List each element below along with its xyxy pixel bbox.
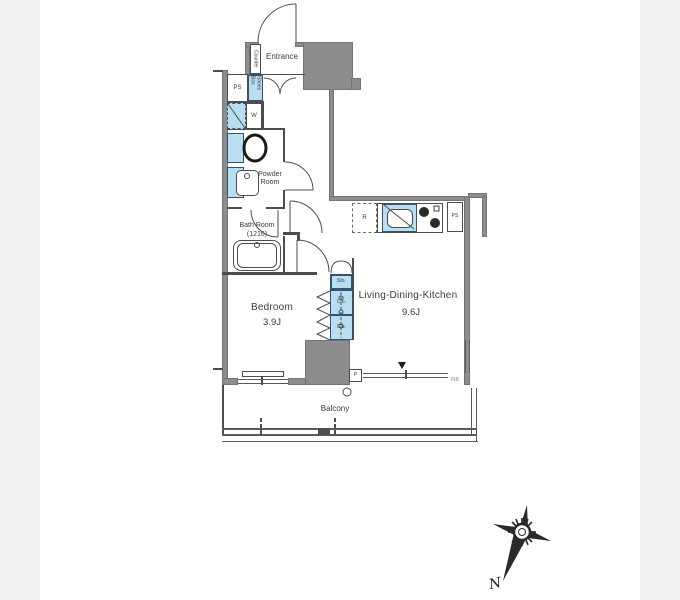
bathtub-faucet <box>255 243 260 248</box>
plan-linework <box>0 0 680 600</box>
closet-folding-doors <box>317 291 330 340</box>
balcony-drain <box>343 388 351 396</box>
vanity-faucet <box>245 174 250 179</box>
stove-burner-2 <box>430 218 440 228</box>
powder-door-arc <box>285 162 313 190</box>
window-marker-triangle <box>398 362 406 369</box>
compass-rose <box>493 505 551 581</box>
stove-control <box>434 206 439 211</box>
entrance-door-arc <box>258 4 296 42</box>
kitchen-sink-diagonal <box>384 205 414 229</box>
floorplan-image: PS Shoes Box Counter W R PS Sto. Clo. Cl… <box>0 0 680 600</box>
bedroom-door-arc <box>297 240 329 272</box>
bath-door-arc <box>251 210 278 237</box>
washer-pan-diagonal <box>228 104 245 128</box>
stove-burner-1 <box>419 207 429 217</box>
shoes-box-doors <box>264 78 296 94</box>
ldk-door-arc <box>290 201 322 233</box>
toilet-bowl <box>244 135 266 161</box>
storage-doors <box>331 261 352 273</box>
compass-sun-circle <box>514 524 530 540</box>
